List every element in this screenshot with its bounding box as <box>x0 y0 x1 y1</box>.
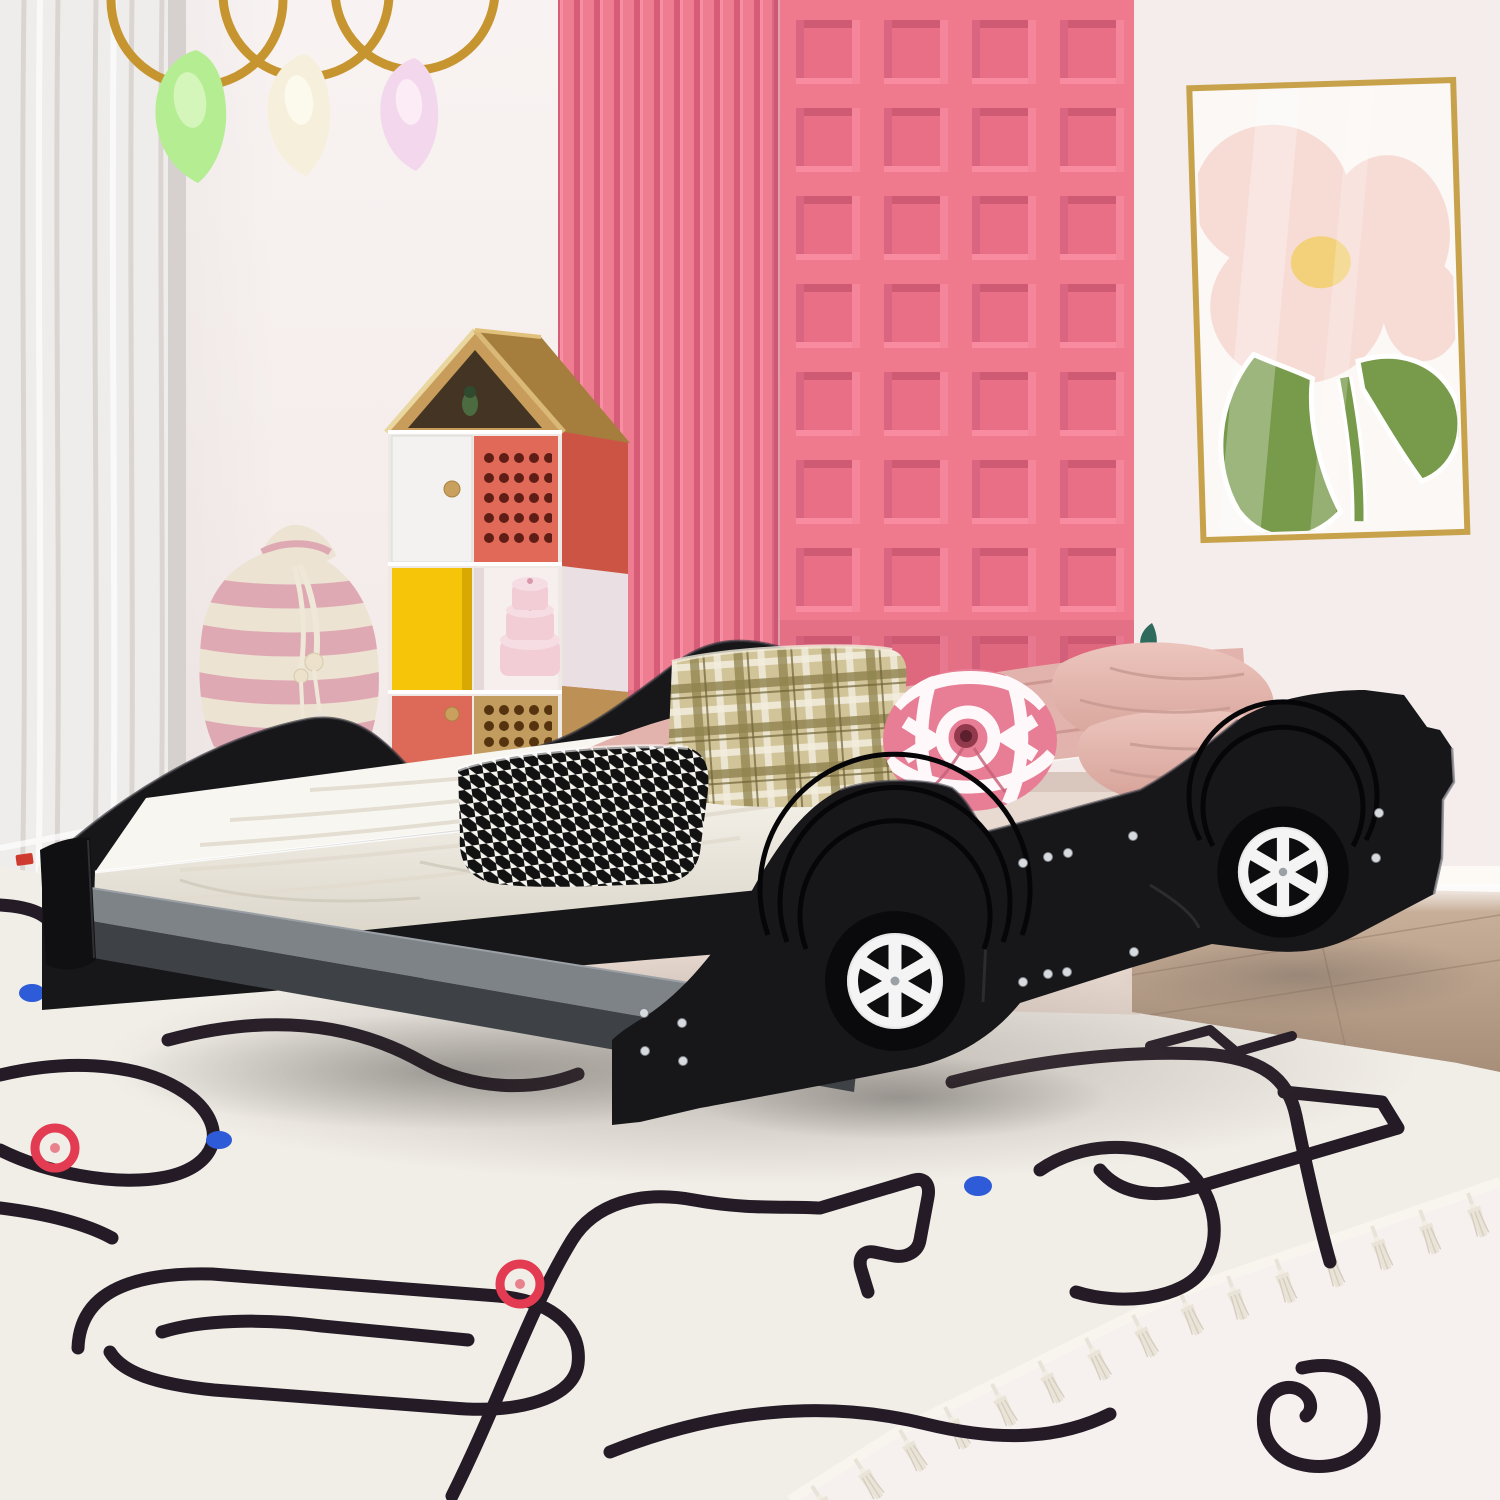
bedroom-photo: Product photo of a kids bedroom: a black… <box>0 0 1500 1500</box>
rivet <box>640 1009 649 1018</box>
panel-cell <box>962 450 1046 534</box>
panel-cell <box>1050 10 1134 94</box>
rivet <box>1044 853 1053 862</box>
panel-cell <box>1050 274 1134 358</box>
cubby-wall <box>474 568 484 690</box>
panel-cell <box>962 98 1046 182</box>
panel-cell <box>1050 362 1134 446</box>
rug-dot-blue <box>964 1176 992 1196</box>
pillow-houndstooth <box>458 746 708 887</box>
door-white <box>392 436 472 562</box>
panel-cell <box>874 98 958 182</box>
rivet <box>1044 970 1053 979</box>
panel-cell <box>962 186 1046 270</box>
panel-cell <box>1050 538 1134 622</box>
panel-cell <box>962 538 1046 622</box>
rivet <box>679 1057 688 1066</box>
panel-cell <box>962 362 1046 446</box>
panel-cell <box>1050 98 1134 182</box>
panel-cell <box>786 538 870 622</box>
rivet <box>1063 968 1072 977</box>
panel-cell <box>1050 186 1134 270</box>
accent-wall-grid-panel <box>780 0 1134 712</box>
panel-cell <box>962 10 1046 94</box>
panel-cell <box>874 538 958 622</box>
panel-cell <box>786 450 870 534</box>
flower-art <box>1189 65 1470 555</box>
rivet <box>1129 832 1138 841</box>
scene: Product photo of a kids bedroom: a black… <box>0 0 1500 1500</box>
vent-holes <box>482 448 552 550</box>
rivet <box>678 1019 687 1028</box>
rug-dot-red-center <box>50 1143 60 1153</box>
toy-block-red <box>15 853 33 866</box>
rivet <box>1375 809 1384 818</box>
end-cap <box>40 838 96 970</box>
rug-dot-red-center <box>515 1279 525 1289</box>
tassel <box>849 1455 886 1500</box>
rivet <box>641 1047 650 1056</box>
panel-cell <box>874 274 958 358</box>
bag-stripe <box>188 682 388 693</box>
panel-cell <box>874 450 958 534</box>
rivet <box>1372 854 1381 863</box>
rivet <box>1019 978 1028 987</box>
front-wheel <box>825 911 965 1051</box>
round-pillow-button-hole <box>960 730 972 742</box>
panel-cell <box>786 274 870 358</box>
panel-cell <box>962 274 1046 358</box>
rug-dot-blue <box>19 984 45 1002</box>
rivet <box>1064 849 1073 858</box>
panel-cell <box>874 362 958 446</box>
rear-wheel <box>1217 806 1349 938</box>
panel-cell <box>874 186 958 270</box>
rivet <box>1130 948 1139 957</box>
bag-stripe <box>188 634 388 645</box>
rivet <box>1019 859 1028 868</box>
panel-cell <box>786 186 870 270</box>
panel-cell <box>874 10 958 94</box>
door-yellow-shade <box>462 568 472 690</box>
gable-figurine-top <box>464 386 476 398</box>
door-knob <box>445 707 459 721</box>
panel-cell <box>786 10 870 94</box>
panel-cell <box>1050 450 1134 534</box>
shelf-side-mid <box>562 566 628 692</box>
door-yellow <box>392 568 472 690</box>
panel-cell <box>786 98 870 182</box>
door-knob <box>444 481 460 497</box>
rug-line <box>1263 1366 1374 1467</box>
panel-cell <box>786 362 870 446</box>
